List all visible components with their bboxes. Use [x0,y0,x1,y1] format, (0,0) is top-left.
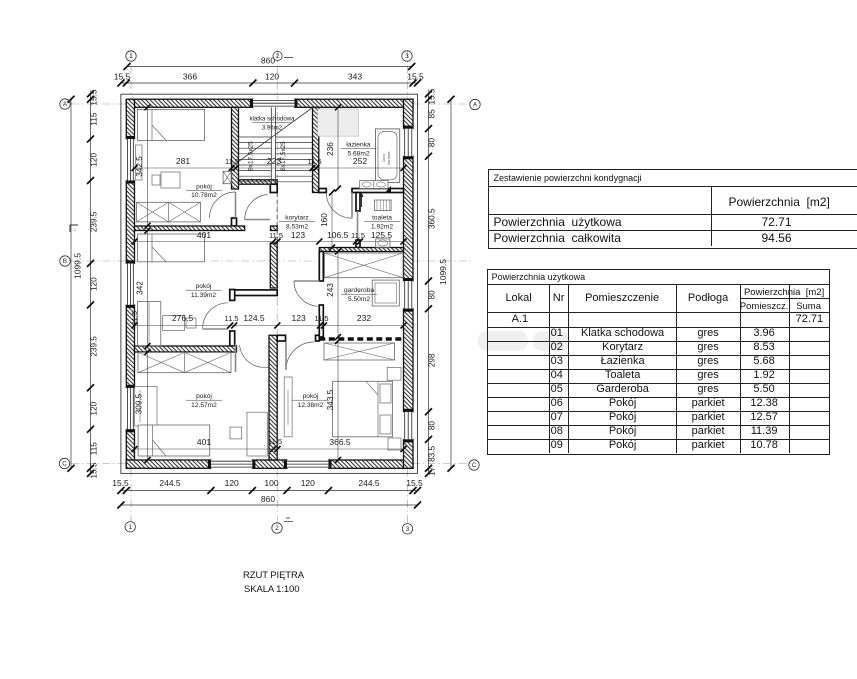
svg-text:pokój: pokój [196,184,212,191]
svg-text:125.5: 125.5 [371,230,393,240]
svg-text:342.5: 342.5 [135,156,144,177]
svg-text:342: 342 [136,281,145,295]
svg-text:223: 223 [267,156,281,166]
svg-text:3.96m2: 3.96m2 [262,125,283,132]
svg-text:1099.5: 1099.5 [73,253,83,279]
svg-text:115: 115 [90,442,99,455]
svg-text:123: 123 [292,313,306,323]
svg-text:120: 120 [301,478,315,488]
svg-text:klatka schodowa: klatka schodowa [249,116,295,123]
svg-text:11.5: 11.5 [307,157,321,166]
svg-text:239.5: 239.5 [90,336,99,357]
svg-text:85: 85 [428,109,437,119]
svg-text:17: 17 [428,466,437,476]
svg-text:9x17,5x25: 9x17,5x25 [248,141,255,171]
svg-text:dachowe: dachowe [387,151,391,164]
svg-text:15.5: 15.5 [407,72,424,82]
svg-text:3: 3 [406,526,410,533]
svg-text:120: 120 [225,478,239,488]
svg-text:łazienka: łazienka [346,142,371,149]
svg-text:Okno: Okno [382,154,386,162]
svg-text:80: 80 [428,138,437,148]
svg-text:401: 401 [197,437,211,447]
svg-text:309.5: 309.5 [135,393,144,414]
svg-text:15.5: 15.5 [114,72,131,82]
svg-text:115: 115 [90,112,99,125]
svg-text:83.5: 83.5 [428,445,437,461]
svg-text:5.50m2: 5.50m2 [348,296,370,303]
svg-text:80: 80 [428,421,437,431]
svg-text:100: 100 [264,478,278,488]
svg-text:1099.5: 1099.5 [438,259,448,285]
svg-text:252: 252 [353,156,367,166]
svg-text:C: C [472,462,477,469]
svg-text:120: 120 [90,401,99,415]
svg-text:366: 366 [183,72,197,82]
svg-text:pokój: pokój [196,393,212,400]
svg-text:garderoba: garderoba [344,287,374,294]
svg-text:244.5: 244.5 [358,478,380,488]
svg-text:120: 120 [90,153,99,167]
svg-text:360.5: 360.5 [428,208,437,229]
svg-text:11.5: 11.5 [269,231,283,240]
svg-text:↓: ↓ [74,227,77,233]
svg-text:15.5: 15.5 [90,462,99,478]
svg-text:3: 3 [405,53,409,60]
svg-text:124.5: 124.5 [243,313,265,323]
svg-text:244.5: 244.5 [159,478,181,488]
svg-text:11.39m2: 11.39m2 [191,292,217,299]
svg-text:pokój: pokój [303,393,319,400]
svg-text:281: 281 [176,156,190,166]
svg-text:10.78m2: 10.78m2 [191,192,217,199]
svg-text:276.5: 276.5 [172,313,194,323]
svg-text:123: 123 [291,230,305,240]
svg-text:80: 80 [428,290,437,300]
svg-text:343: 343 [348,72,362,82]
svg-text:15.5: 15.5 [428,88,437,104]
svg-text:1: 1 [129,53,133,60]
svg-text:1: 1 [128,524,132,531]
svg-text:12.57m2: 12.57m2 [191,402,217,409]
svg-text:243: 243 [326,283,335,297]
svg-text:korytarz: korytarz [285,215,308,222]
svg-text:120: 120 [90,277,99,291]
svg-text:160: 160 [320,213,329,227]
svg-text:∞: ∞ [286,516,290,522]
svg-text:2: 2 [276,53,280,60]
svg-text:232: 232 [357,313,371,323]
svg-text:120: 120 [265,72,279,82]
svg-text:2: 2 [275,525,279,532]
svg-text:12.38m2: 12.38m2 [298,402,324,409]
svg-text:11.5: 11.5 [314,314,328,323]
svg-text:toaleta: toaleta [372,215,392,222]
svg-text:239.5: 239.5 [90,211,99,232]
svg-text:15.5: 15.5 [90,89,99,105]
svg-text:343.5: 343.5 [326,389,335,410]
svg-text:B: B [63,258,67,265]
svg-text:15.5: 15.5 [112,478,129,488]
svg-text:298: 298 [428,353,437,367]
svg-text:11.5: 11.5 [268,437,282,446]
svg-text:401: 401 [197,230,211,240]
svg-text:860: 860 [261,494,275,504]
svg-text:15.5: 15.5 [406,478,423,488]
svg-text:pokój: pokój [196,283,212,290]
svg-text:C: C [62,461,67,468]
svg-text:106.5: 106.5 [327,230,349,240]
svg-text:11.5: 11.5 [225,157,239,166]
svg-text:236: 236 [326,142,335,156]
svg-text:11.5: 11.5 [130,311,139,325]
svg-text:11.5: 11.5 [224,314,238,323]
svg-text:366.5: 366.5 [329,437,351,447]
svg-text:11.5: 11.5 [351,231,365,240]
